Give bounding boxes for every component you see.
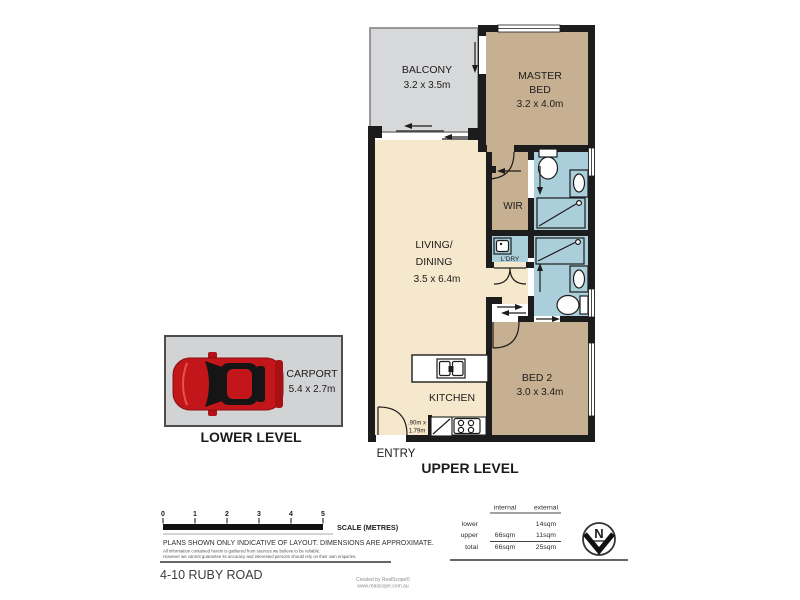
- table-row-total-external: 25sqm: [536, 544, 557, 551]
- wir-label: WIR: [503, 201, 522, 212]
- bathroom-toilet: [557, 296, 588, 315]
- upper-level-plan: BALCONY 3.2 x 3.5m MASTER BED 3.2 x 4.0m…: [368, 25, 595, 476]
- scale-tick-marks: [163, 518, 323, 524]
- scale-tick-0: 0: [161, 511, 165, 518]
- wall-segment: [368, 133, 375, 442]
- ensuite-toilet: [539, 149, 558, 179]
- master-bed-dims: 3.2 x 4.0m: [517, 99, 564, 110]
- wall-segment: [486, 230, 595, 236]
- wall-segment: [486, 316, 492, 322]
- disclaimer: PLANS SHOWN ONLY INDICATIVE OF LAYOUT. D…: [160, 540, 434, 562]
- kitchen-island: [412, 355, 488, 382]
- scale-tick-2: 2: [225, 511, 229, 518]
- bed2-dims: 3.0 x 3.4m: [517, 387, 564, 398]
- wall-segment: [468, 128, 486, 140]
- pantry-dims-1: .90m x: [408, 421, 426, 427]
- wall-segment: [518, 316, 533, 322]
- wall-segment: [526, 262, 534, 268]
- wall-segment: [486, 262, 494, 268]
- wall-segment: [368, 126, 382, 138]
- balcony-slider-pocket: [479, 36, 486, 74]
- carport-dims: 5.4 x 2.7m: [289, 384, 336, 395]
- lower-level-title: LOWER LEVEL: [200, 429, 302, 445]
- sink-tap: [449, 366, 454, 372]
- bed2-label: BED 2: [522, 372, 553, 384]
- bed2-door-gap: [492, 316, 518, 322]
- disclaimer-line-2: All information contained herein is gath…: [163, 549, 320, 554]
- footer: 4-10 RUBY ROAD Created by RealScope© www…: [160, 568, 410, 590]
- scale-bar: 0 1 2 3 4 5 SCALE (METRES): [161, 511, 399, 534]
- table-row-lower-external: 14sqm: [536, 521, 557, 528]
- ensuite-door-gap: [528, 158, 534, 198]
- disclaimer-line-1: PLANS SHOWN ONLY INDICATIVE OF LAYOUT. D…: [163, 540, 434, 547]
- entry-opening: [376, 435, 406, 442]
- wall-segment: [528, 152, 534, 160]
- floorplan-drawing: BALCONY 3.2 x 3.5m MASTER BED 3.2 x 4.0m…: [0, 0, 800, 600]
- table-row-lower-label: lower: [462, 521, 479, 528]
- table-header-external: external: [534, 505, 559, 512]
- upper-level-title: UPPER LEVEL: [421, 460, 519, 476]
- entry-label: ENTRY: [377, 448, 416, 460]
- scale-tick-4: 4: [289, 511, 293, 518]
- carport-label: CARPORT: [286, 368, 338, 380]
- sink-bowl: [453, 362, 464, 376]
- table-row-upper-external: 11sqm: [536, 532, 556, 539]
- balcony-dims: 3.2 x 3.5m: [404, 80, 451, 91]
- scale-tick-3: 3: [257, 511, 261, 518]
- scale-tick-5: 5: [321, 511, 325, 518]
- master-door-gap: [487, 145, 514, 152]
- table-row-upper-label: upper: [461, 532, 479, 539]
- table-row-upper-internal: 66sqm: [495, 532, 516, 539]
- living-label-2: DINING: [416, 256, 453, 268]
- address-title: 4-10 RUBY ROAD: [160, 568, 263, 582]
- scale-bar-rule: [163, 524, 323, 530]
- master-bed-label-2: BED: [529, 84, 551, 96]
- kitchen-label: KITCHEN: [429, 392, 475, 404]
- compass-north-label: N: [594, 526, 603, 541]
- disclaimer-line-3: However we cannot guarantee its accuracy…: [163, 554, 356, 559]
- living-dims: 3.5 x 6.4m: [414, 274, 461, 285]
- credit-line-1: Created by RealScope©: [356, 576, 410, 583]
- wir-room: [492, 152, 528, 230]
- floorplan-page: BALCONY 3.2 x 3.5m MASTER BED 3.2 x 4.0m…: [0, 0, 800, 600]
- pantry-cupboard: [431, 417, 452, 436]
- sink-bowl: [440, 362, 451, 376]
- car-roof: [227, 369, 252, 399]
- car-rear: [275, 360, 283, 408]
- table-row-total-internal: 66sqm: [495, 544, 516, 551]
- car-top-view: [173, 352, 283, 416]
- kitchen-bench: [452, 417, 486, 435]
- credit-line-2: www.realscope.com.au: [357, 584, 409, 590]
- living-label-1: LIVING/: [415, 239, 452, 251]
- car-rear-window: [256, 366, 265, 402]
- wall-segment: [478, 145, 487, 152]
- pantry-dims-2: 1.79m: [409, 429, 426, 435]
- hall-corridor: [486, 304, 534, 316]
- living-dining-room: [375, 140, 486, 435]
- lower-level-plan: CARPORT 5.4 x 2.7m LOWER LEVEL: [165, 336, 342, 445]
- master-bed-label-1: MASTER: [518, 70, 562, 82]
- scale-label: SCALE (METRES): [337, 523, 399, 532]
- table-row-total-label: total: [465, 544, 478, 551]
- wall-segment: [528, 198, 534, 258]
- laundry-label: L'DRY: [501, 256, 520, 263]
- scale-tick-1: 1: [193, 511, 197, 518]
- north-compass-icon: N: [583, 523, 615, 555]
- balcony-label: BALCONY: [402, 64, 452, 76]
- table-header-internal: internal: [494, 505, 517, 512]
